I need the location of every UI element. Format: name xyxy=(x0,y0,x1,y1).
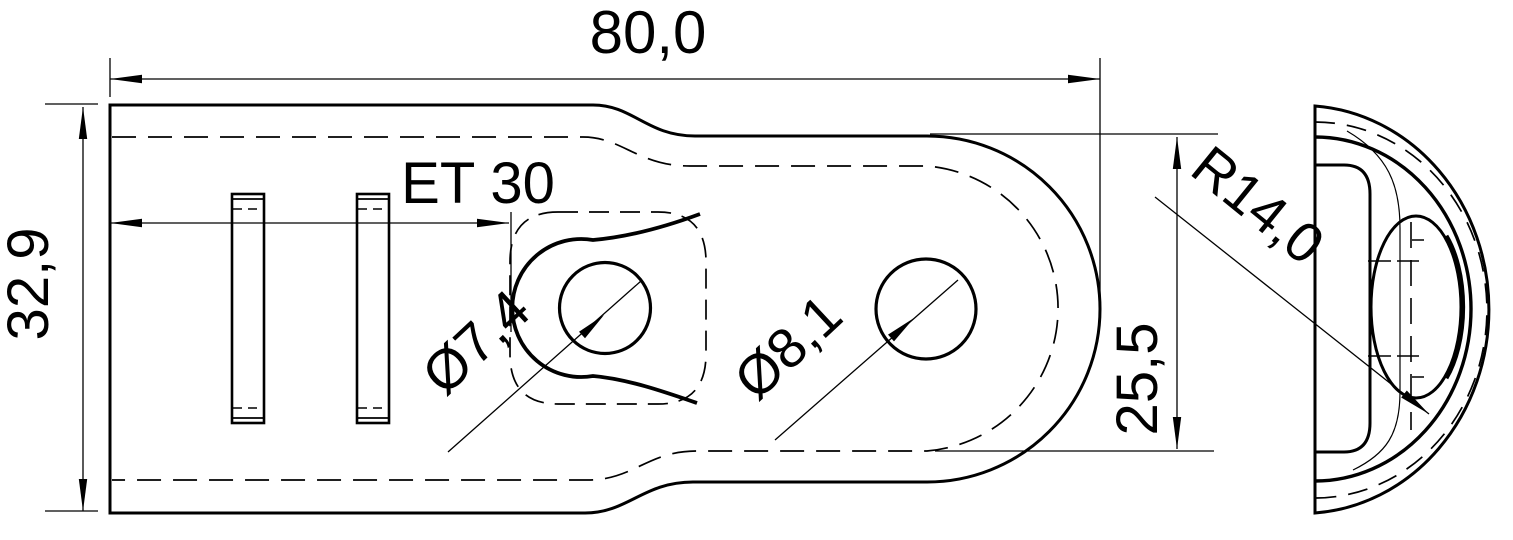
front-view xyxy=(110,105,1100,513)
leader-arrow-hole-small xyxy=(579,315,604,338)
dimension-labels: 80,0 32,9 ET 30 Ø7,4 Ø8,1 25,5 R14,0 xyxy=(0,0,1336,435)
front-hidden-outline xyxy=(112,137,1058,480)
dim-height-total-label: 32,9 xyxy=(0,228,61,341)
technical-drawing-canvas: 80,0 32,9 ET 30 Ø7,4 Ø8,1 25,5 R14,0 xyxy=(0,0,1513,540)
hole-large xyxy=(876,259,976,359)
rib-slot-2-body xyxy=(357,194,389,423)
leader-arrow-hole-large xyxy=(888,318,914,341)
side-bend-tangent-line xyxy=(1347,131,1400,470)
dimensions xyxy=(45,58,1429,511)
dim-height-end-label: 25,5 xyxy=(1105,323,1170,436)
dim-emboss-spacing-label: ET 30 xyxy=(401,151,555,216)
boss-curve xyxy=(512,214,700,403)
leader-arrow-radius xyxy=(1401,391,1429,415)
side-hole-edge-centerlines xyxy=(1368,240,1424,377)
rib-slot-1 xyxy=(232,194,264,423)
side-inner-arc xyxy=(1315,137,1471,481)
boss-hidden-square xyxy=(510,212,706,404)
side-cavity-profile xyxy=(1315,165,1370,452)
drawing-svg: 80,0 32,9 ET 30 Ø7,4 Ø8,1 25,5 R14,0 xyxy=(0,0,1513,540)
rib-slot-2 xyxy=(357,194,389,423)
side-view xyxy=(1315,106,1489,513)
front-outline xyxy=(110,105,1100,513)
side-boss-oval-thick-edge xyxy=(1446,236,1463,378)
dim-length-total-label: 80,0 xyxy=(590,0,707,66)
dim-hole-large-label: Ø8,1 xyxy=(722,282,854,411)
hole-small xyxy=(560,263,651,354)
rib-slot-1-body xyxy=(232,194,264,423)
dim-radius-end-label: R14,0 xyxy=(1180,133,1336,276)
